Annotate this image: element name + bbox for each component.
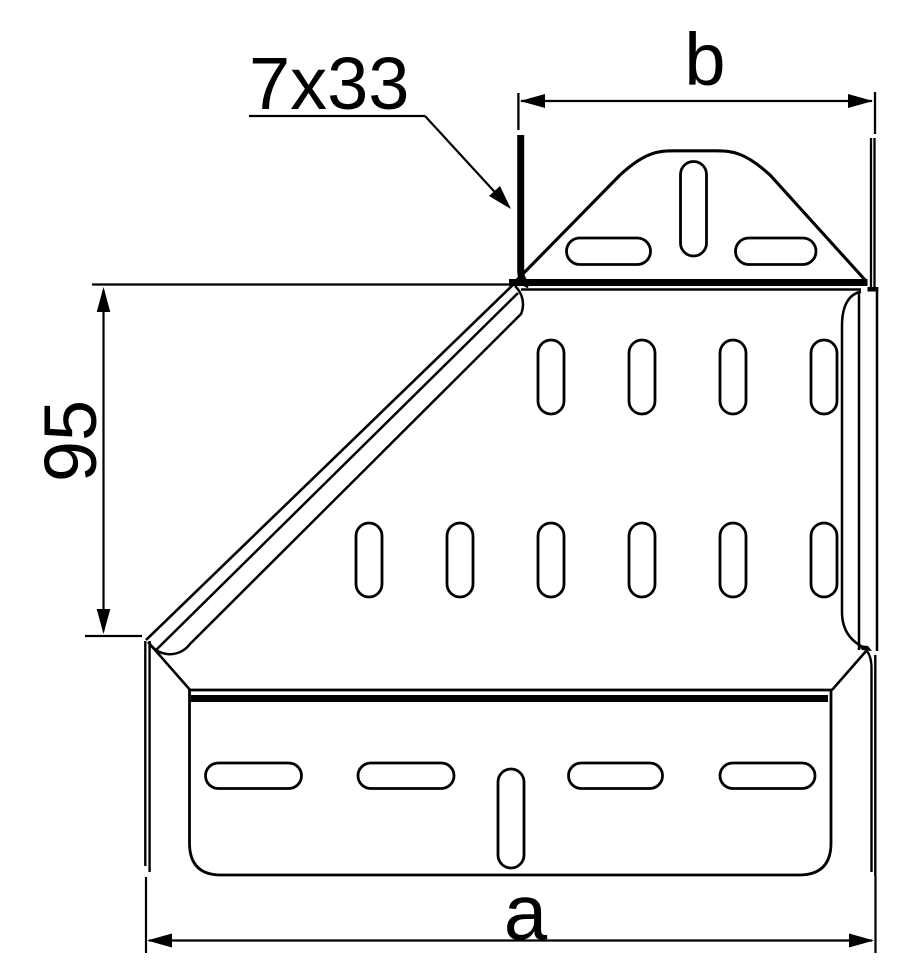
- svg-text:95: 95: [29, 400, 112, 482]
- svg-text:b: b: [684, 18, 725, 101]
- svg-text:7x33: 7x33: [249, 42, 409, 125]
- svg-text:a: a: [504, 868, 548, 956]
